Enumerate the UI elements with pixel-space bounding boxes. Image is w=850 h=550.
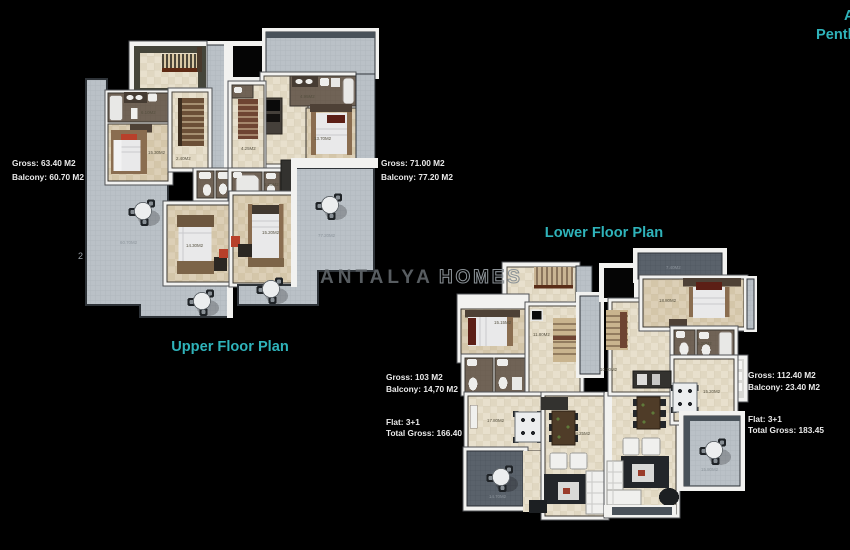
svg-text:15.15M2: 15.15M2 [494,320,512,325]
svg-text:15.30M2: 15.30M2 [148,150,166,155]
svg-text:A4: A4 [844,8,850,24]
svg-text:77.20M2: 77.20M2 [318,233,336,238]
svg-text:Balcony: 14,70 M2: Balcony: 14,70 M2 [386,384,458,394]
svg-text:Total Gross: 183.45: Total Gross: 183.45 [748,425,824,435]
svg-text:14.30M2: 14.30M2 [186,243,204,248]
svg-text:60.70M2: 60.70M2 [120,240,138,245]
svg-text:4.25M2: 4.25M2 [241,146,256,151]
svg-text:Total Gross: 166.40: Total Gross: 166.40 [386,428,462,438]
svg-text:Gross: 63.40 M2: Gross: 63.40 M2 [12,158,76,168]
svg-text:15.20M2: 15.20M2 [703,389,721,394]
svg-text:14.70M2: 14.70M2 [489,494,507,499]
svg-text:Balcony: 60.70 M2: Balcony: 60.70 M2 [12,172,84,182]
svg-text:Balcony: 77.20 M2: Balcony: 77.20 M2 [381,172,453,182]
svg-text:5.20M2: 5.20M2 [697,341,712,346]
svg-text:HOMES: HOMES [439,267,523,288]
svg-text:4.95M2: 4.95M2 [300,94,315,99]
svg-text:5.25M2: 5.25M2 [264,182,279,187]
svg-text:Gross: 103 M2: Gross: 103 M2 [386,372,443,382]
svg-text:Penthouse: Penthouse [816,27,850,43]
svg-text:Upper Floor Plan: Upper Floor Plan [171,339,289,355]
svg-text:Flat: 3+1: Flat: 3+1 [386,417,420,427]
svg-text:15.80M2: 15.80M2 [701,467,719,472]
svg-text:2.40M2: 2.40M2 [176,156,191,161]
svg-text:Lower Floor Plan: Lower Floor Plan [545,225,663,241]
svg-text:Gross: 112.40 M2: Gross: 112.40 M2 [748,370,816,380]
svg-text:2: 2 [78,251,83,261]
svg-text:ANTALYA: ANTALYA [320,267,434,288]
svg-text:Flat: 3+1: Flat: 3+1 [748,414,782,424]
svg-text:Gross: 71.00 M2: Gross: 71.00 M2 [381,158,445,168]
svg-text:11.80M2: 11.80M2 [533,332,550,337]
svg-text:13.70M2: 13.70M2 [314,136,332,141]
svg-text:15.20M2: 15.20M2 [262,230,280,235]
svg-text:18.80M2: 18.80M2 [659,298,677,303]
svg-text:10.10M2: 10.10M2 [600,367,618,372]
svg-text:6.10M2: 6.10M2 [141,110,156,115]
svg-text:17.80M2: 17.80M2 [487,418,505,423]
svg-text:7.40M2: 7.40M2 [666,265,681,270]
svg-text:Balcony: 23.40 M2: Balcony: 23.40 M2 [748,382,820,392]
